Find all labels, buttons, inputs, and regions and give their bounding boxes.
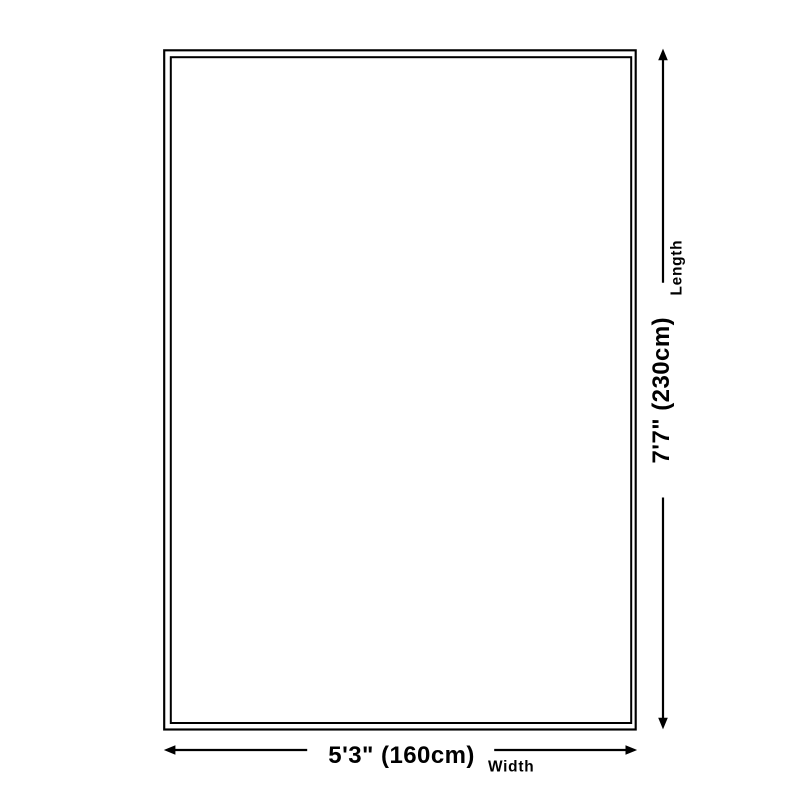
svg-text:7'7" (230cm): 7'7" (230cm) bbox=[648, 317, 675, 464]
svg-text:Length: Length bbox=[669, 240, 686, 296]
svg-text:5'3" (160cm): 5'3" (160cm) bbox=[328, 742, 475, 769]
svg-text:Width: Width bbox=[488, 758, 534, 775]
